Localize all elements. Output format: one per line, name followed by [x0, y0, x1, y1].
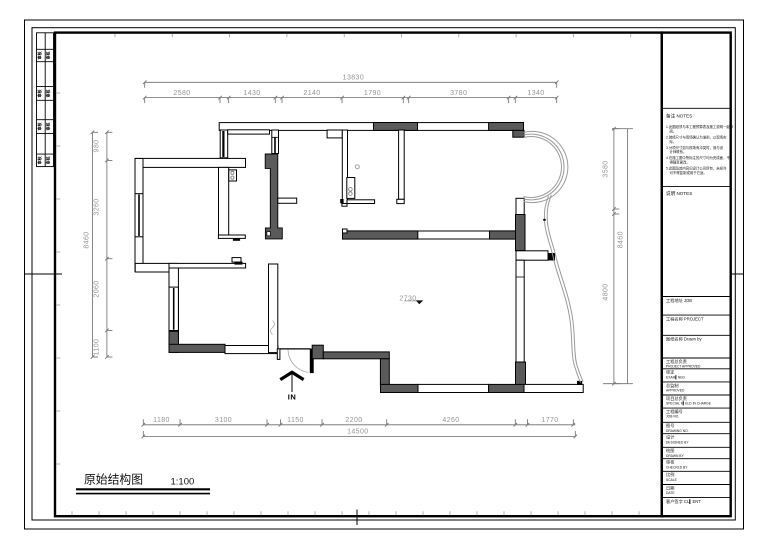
- svg-text:3780: 3780: [450, 90, 467, 97]
- svg-text:PROJECT APPROVED: PROJECT APPROVED: [666, 365, 701, 369]
- svg-text:际。: 际。: [670, 139, 677, 144]
- svg-text:2580: 2580: [173, 90, 190, 97]
- svg-text:DRAWING NO.: DRAWING NO.: [666, 429, 689, 433]
- svg-text:CHECKED BY: CHECKED BY: [666, 465, 688, 469]
- svg-text:DESIGNED BY: DESIGNED BY: [666, 440, 689, 444]
- svg-text:3.分项尺寸如与现场有冲突时，请与设: 3.分项尺寸如与现场有冲突时，请与设: [666, 145, 724, 150]
- svg-text:审核: 审核: [36, 52, 42, 60]
- svg-text:2730: 2730: [399, 296, 416, 303]
- svg-text:1790: 1790: [364, 90, 381, 97]
- svg-text:工程地址 JOB: 工程地址 JOB: [666, 297, 692, 304]
- svg-text:客户签字 CL▍ENT: 客户签字 CL▍ENT: [666, 498, 701, 505]
- svg-text:原始结构图: 原始结构图: [84, 473, 143, 487]
- svg-text:2200: 2200: [345, 417, 362, 424]
- svg-text:计师联系。: 计师联系。: [670, 149, 687, 154]
- svg-text:SCALE: SCALE: [666, 478, 678, 482]
- svg-text:得随意更改。: 得随意更改。: [670, 160, 690, 165]
- svg-text:可不得复制或用于它途。: 可不得复制或用于它途。: [670, 170, 707, 175]
- svg-text:审核: 审核: [44, 156, 50, 164]
- svg-text:3580: 3580: [603, 160, 610, 177]
- svg-text:8460: 8460: [84, 231, 91, 248]
- svg-text:审核: 审核: [36, 156, 42, 164]
- svg-text:3100: 3100: [215, 417, 232, 424]
- svg-text:IN: IN: [288, 393, 297, 402]
- svg-text:JOB NO.: JOB NO.: [666, 415, 679, 419]
- svg-text:备注 NOTES: 备注 NOTES: [666, 113, 692, 120]
- svg-text:5.此图及其内容归设计公司所有，未经许: 5.此图及其内容归设计公司所有，未经许: [666, 166, 727, 171]
- svg-text:1100: 1100: [94, 339, 101, 356]
- svg-text:DRAWN BY: DRAWN BY: [666, 454, 684, 458]
- svg-text:图纸名称 Drawn by: 图纸名称 Drawn by: [666, 336, 703, 343]
- svg-text:4260: 4260: [442, 417, 459, 424]
- svg-text:阅。: 阅。: [670, 128, 677, 133]
- svg-text:8460: 8460: [618, 231, 625, 248]
- svg-text:2.装修尺寸与现场确认为准则，以现场实: 2.装修尺寸与现场确认为准则，以现场实: [666, 134, 727, 139]
- svg-text:SPECIAL F▍ELD IN CHARGE: SPECIAL F▍ELD IN CHARGE: [666, 402, 712, 406]
- svg-text:审核: 审核: [36, 90, 42, 98]
- svg-text:4.在施工图中所标注的尺寸均为完成面，不: 4.在施工图中所标注的尺寸均为完成面，不: [666, 155, 730, 160]
- svg-text:1340: 1340: [527, 90, 544, 97]
- svg-text:审核: 审核: [44, 52, 50, 60]
- svg-text:1150: 1150: [287, 417, 304, 424]
- svg-text:4800: 4800: [603, 283, 610, 300]
- svg-text:1430: 1430: [243, 90, 260, 97]
- svg-text:980: 980: [94, 140, 101, 153]
- svg-text:说明 NOTES: 说明 NOTES: [666, 190, 692, 197]
- svg-text:审核: 审核: [44, 123, 50, 131]
- svg-text:审核: 审核: [44, 90, 50, 98]
- svg-text:1.此图纸须与本工程预算表及施工说明一起参: 1.此图纸须与本工程预算表及施工说明一起参: [666, 124, 734, 129]
- svg-text:1180: 1180: [153, 417, 170, 424]
- svg-text:2140: 2140: [303, 90, 320, 97]
- svg-text:13830: 13830: [343, 75, 364, 82]
- svg-text:1770: 1770: [541, 417, 558, 424]
- svg-text:APPROVED: APPROVED: [666, 389, 685, 393]
- svg-text:2060: 2060: [94, 280, 101, 297]
- svg-text:1:100: 1:100: [171, 477, 195, 488]
- svg-text:3260: 3260: [94, 198, 101, 215]
- svg-text:工程名称 PROJECT: 工程名称 PROJECT: [666, 316, 704, 323]
- svg-text:14500: 14500: [347, 429, 368, 436]
- svg-text:DATE: DATE: [666, 491, 675, 495]
- svg-text:EXAM▍NED: EXAM▍NED: [666, 375, 685, 379]
- svg-text:审核: 审核: [36, 123, 42, 131]
